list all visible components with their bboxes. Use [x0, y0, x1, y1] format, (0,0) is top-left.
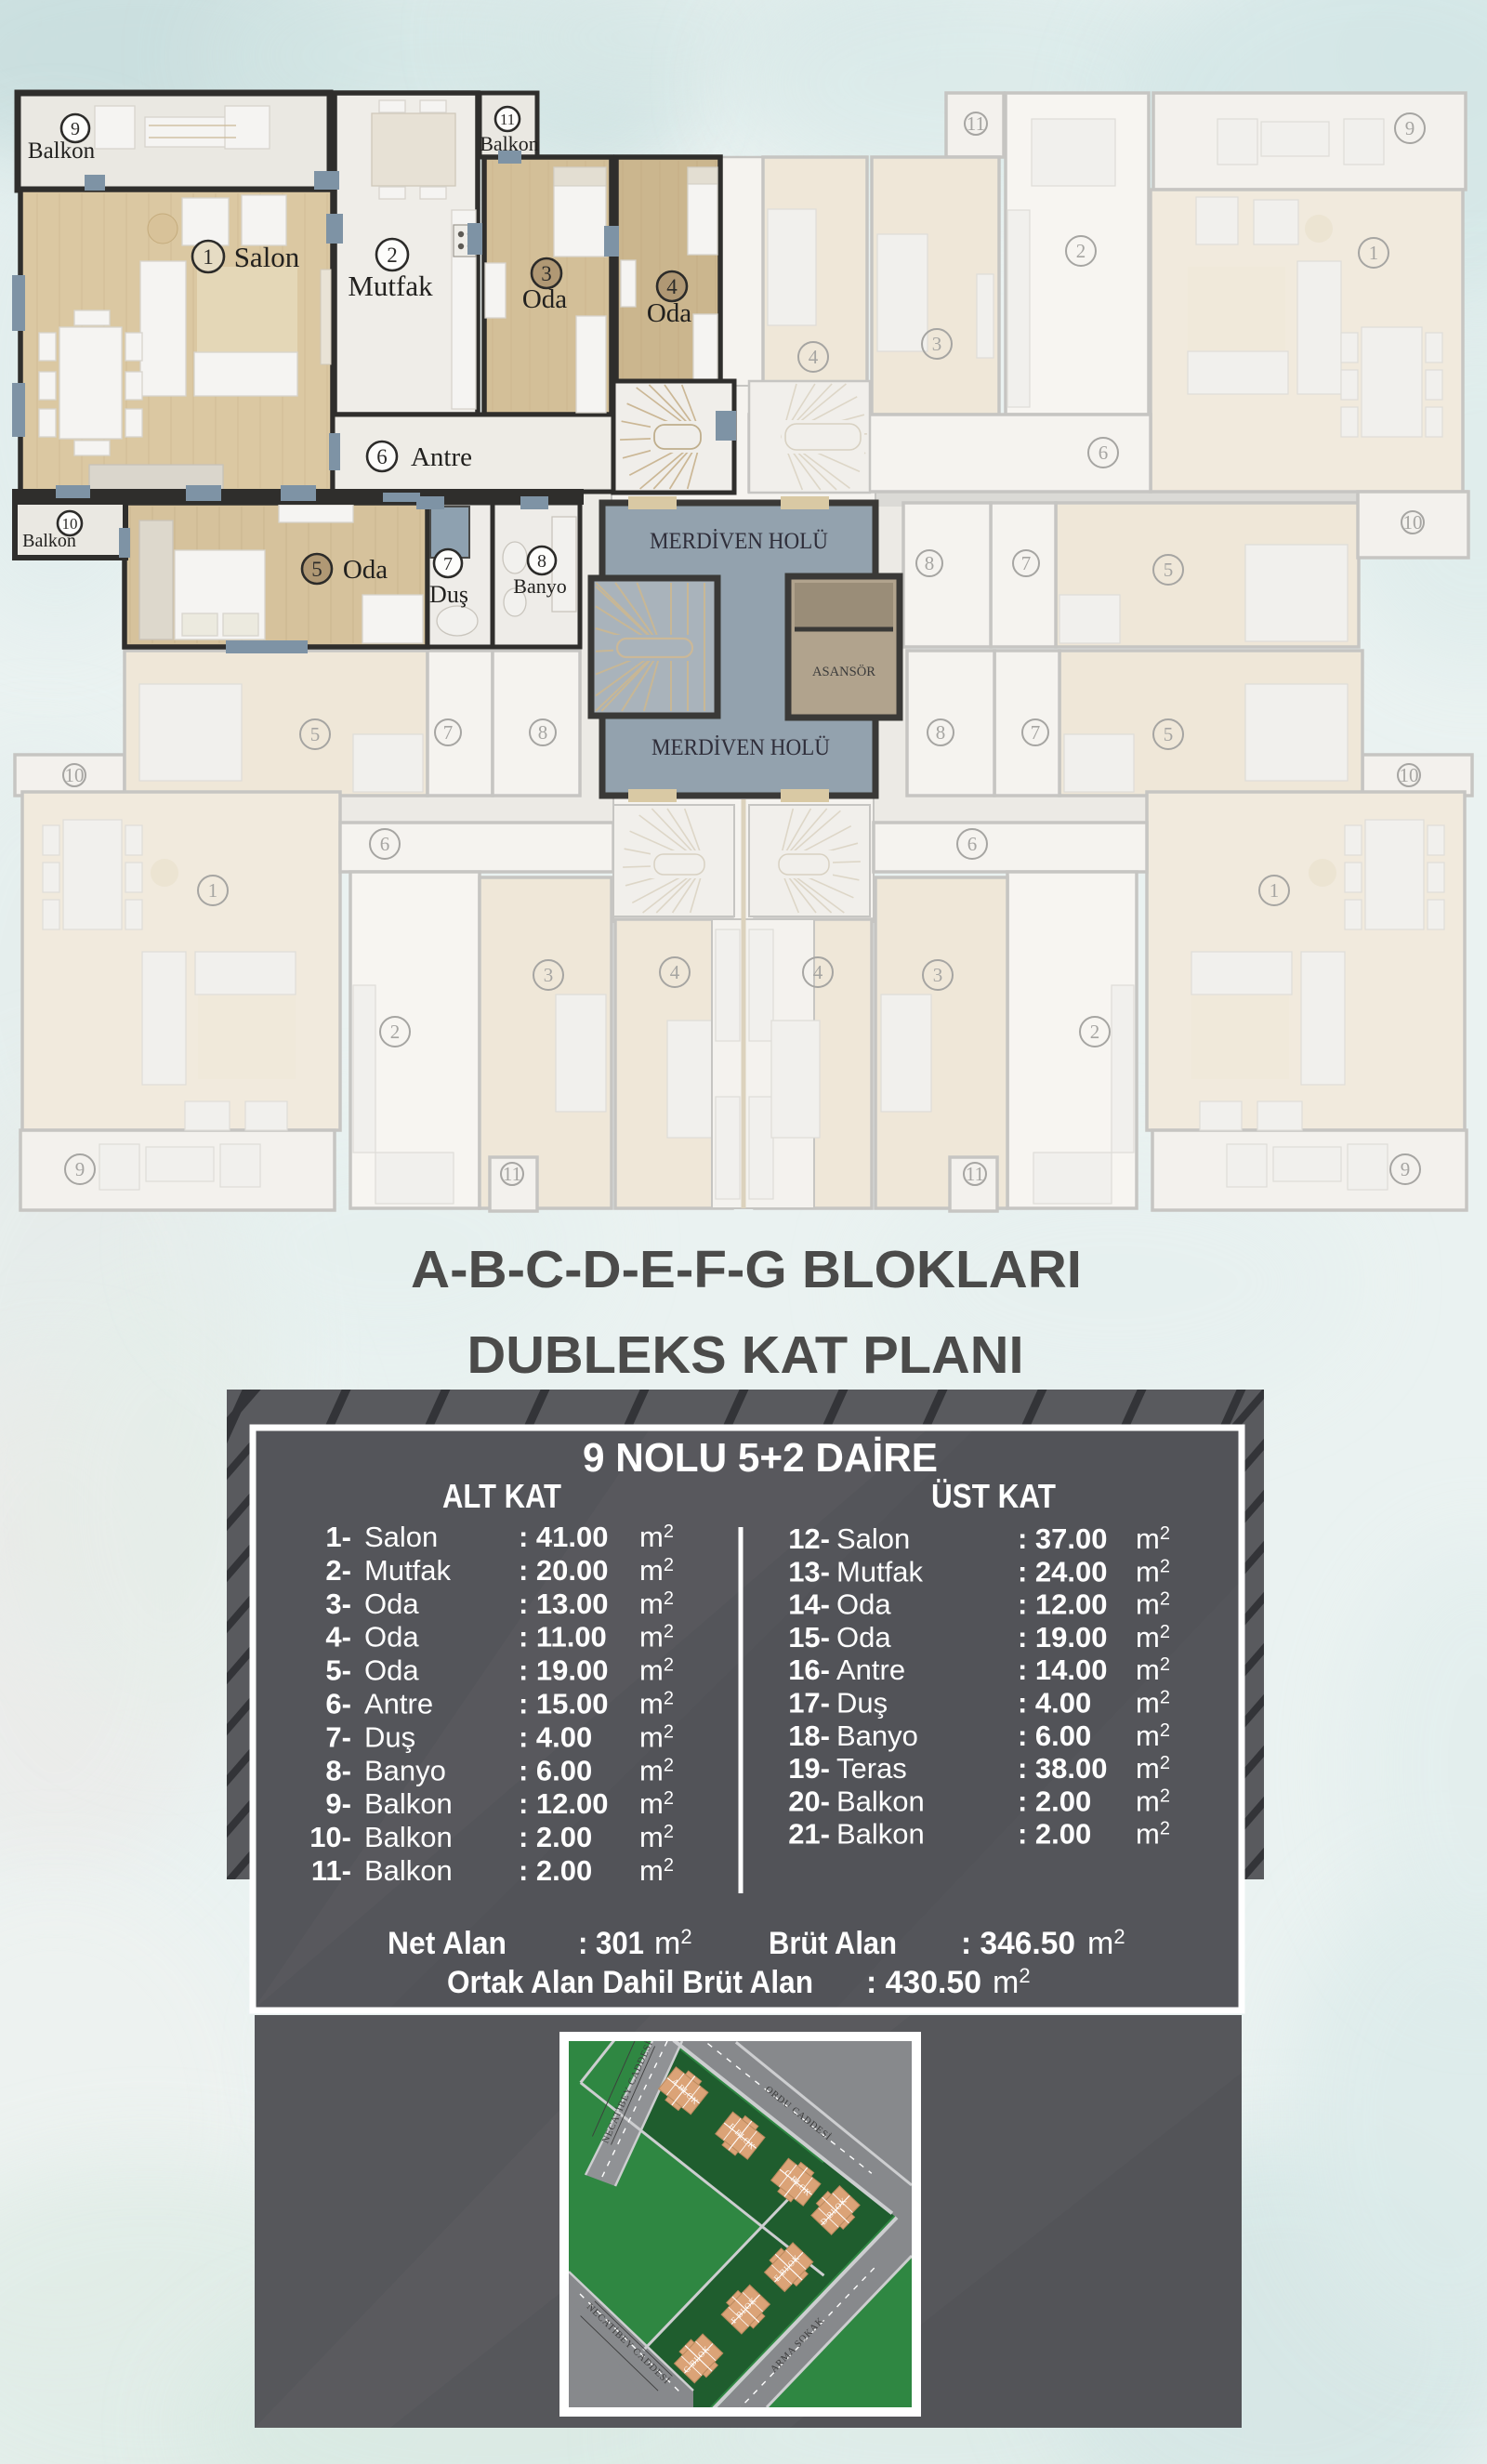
svg-text:11: 11 — [966, 1163, 984, 1185]
svg-text:16-: 16- — [788, 1654, 830, 1686]
svg-text:: 14.00: : 14.00 — [1018, 1654, 1108, 1686]
svg-text:Antre: Antre — [364, 1688, 433, 1720]
svg-text:9: 9 — [1401, 1158, 1411, 1180]
svg-text:1-: 1- — [325, 1521, 351, 1553]
svg-text:DUBLEKS KAT PLANI: DUBLEKS KAT PLANI — [467, 1325, 1024, 1385]
svg-text:8: 8 — [537, 551, 546, 572]
svg-text:Balkon: Balkon — [364, 1787, 453, 1820]
svg-text:8: 8 — [925, 552, 935, 574]
svg-text:11: 11 — [500, 111, 515, 128]
svg-text:Ortak Alan Dahil Brüt Alan: Ortak Alan Dahil Brüt Alan — [447, 1965, 813, 2000]
svg-text:10: 10 — [65, 764, 85, 786]
svg-text:Salon: Salon — [234, 241, 300, 273]
svg-text:11: 11 — [503, 1163, 521, 1185]
svg-text:5: 5 — [311, 558, 322, 581]
svg-text:Teras: Teras — [836, 1752, 907, 1785]
svg-text:3: 3 — [933, 964, 943, 986]
svg-text:: 19.00: : 19.00 — [1018, 1621, 1108, 1654]
svg-text:3: 3 — [544, 964, 554, 986]
svg-text:7: 7 — [443, 554, 453, 574]
svg-text:: 301: : 301 — [578, 1926, 644, 1961]
svg-text:: 2.00: : 2.00 — [1018, 1785, 1091, 1817]
svg-text:13-: 13- — [788, 1555, 830, 1588]
svg-text:Net Alan: Net Alan — [388, 1926, 507, 1961]
svg-text:2: 2 — [1090, 1021, 1100, 1043]
svg-text:10: 10 — [1403, 511, 1423, 534]
svg-text:A-B-C-D-E-F-G BLOKLARI: A-B-C-D-E-F-G BLOKLARI — [411, 1240, 1082, 1299]
svg-text:Balkon: Balkon — [836, 1785, 925, 1817]
svg-text:3: 3 — [932, 333, 942, 355]
svg-text:1: 1 — [208, 879, 218, 902]
svg-text:: 6.00: : 6.00 — [519, 1754, 592, 1786]
svg-text:4-: 4- — [325, 1621, 351, 1654]
svg-text:2: 2 — [390, 1021, 401, 1043]
svg-text:12-: 12- — [788, 1522, 830, 1555]
svg-text:ÜST KAT: ÜST KAT — [931, 1477, 1056, 1515]
svg-text:5: 5 — [310, 723, 321, 745]
svg-text:Banyo: Banyo — [364, 1754, 446, 1786]
svg-text:MERDİVEN HOLÜ: MERDİVEN HOLÜ — [650, 529, 828, 554]
svg-text:1: 1 — [203, 245, 214, 269]
svg-text:Oda: Oda — [522, 284, 567, 314]
svg-text:9: 9 — [1405, 117, 1415, 139]
svg-text:Oda: Oda — [836, 1588, 891, 1621]
svg-text:Salon: Salon — [836, 1522, 910, 1555]
svg-text:11-: 11- — [311, 1854, 351, 1887]
svg-text:: 346.50: : 346.50 — [961, 1926, 1075, 1961]
svg-text:10-: 10- — [309, 1821, 351, 1853]
svg-text:: 13.00: : 13.00 — [519, 1588, 609, 1620]
svg-text:: 2.00: : 2.00 — [1018, 1818, 1091, 1851]
svg-text:Balkon: Balkon — [836, 1818, 925, 1851]
svg-text:Banyo: Banyo — [513, 574, 566, 598]
svg-text:: 12.00: : 12.00 — [519, 1787, 609, 1820]
svg-text:Antre: Antre — [836, 1654, 905, 1686]
svg-text:Oda: Oda — [364, 1621, 419, 1654]
svg-text:4: 4 — [666, 275, 678, 298]
svg-text:Balkon: Balkon — [364, 1821, 453, 1853]
svg-text:15-: 15- — [788, 1621, 830, 1654]
svg-text:9: 9 — [71, 119, 80, 139]
svg-text:Balkon: Balkon — [364, 1854, 453, 1887]
svg-text:Oda: Oda — [836, 1621, 891, 1654]
svg-text:: 430.50: : 430.50 — [866, 1965, 981, 2000]
svg-text:17-: 17- — [788, 1687, 830, 1720]
svg-text:6: 6 — [1099, 441, 1109, 464]
svg-text:: 15.00: : 15.00 — [519, 1688, 609, 1720]
svg-text:18-: 18- — [788, 1720, 830, 1752]
svg-text:4: 4 — [670, 961, 680, 983]
svg-text:: 41.00: : 41.00 — [519, 1521, 609, 1553]
svg-text:2-: 2- — [325, 1554, 351, 1587]
svg-text:: 4.00: : 4.00 — [519, 1720, 592, 1753]
svg-text:: 38.00: : 38.00 — [1018, 1752, 1108, 1785]
svg-text:8: 8 — [936, 721, 946, 744]
svg-text:21-: 21- — [788, 1818, 830, 1851]
svg-text:5: 5 — [1164, 559, 1174, 581]
svg-text:7: 7 — [443, 721, 454, 744]
svg-text:4: 4 — [809, 346, 819, 368]
svg-text:: 37.00: : 37.00 — [1018, 1522, 1108, 1555]
svg-text:Oda: Oda — [647, 298, 691, 328]
svg-text:ALT KAT: ALT KAT — [442, 1477, 561, 1515]
svg-text:20-: 20- — [788, 1785, 830, 1817]
svg-text:7: 7 — [1021, 552, 1032, 574]
svg-text:Banyo: Banyo — [836, 1720, 918, 1752]
svg-text:10: 10 — [1400, 764, 1419, 786]
svg-text:8: 8 — [538, 721, 548, 744]
svg-text:8-: 8- — [325, 1754, 351, 1786]
svg-text:9-: 9- — [325, 1787, 351, 1820]
svg-text:: 19.00: : 19.00 — [519, 1654, 609, 1687]
svg-text:3-: 3- — [325, 1588, 351, 1620]
svg-text:Oda: Oda — [364, 1654, 419, 1687]
svg-text:Balkon: Balkon — [480, 132, 539, 155]
svg-text:Antre: Antre — [411, 442, 472, 472]
svg-text:1: 1 — [1369, 242, 1379, 264]
svg-text:5-: 5- — [325, 1654, 351, 1687]
svg-text:: 20.00: : 20.00 — [519, 1554, 609, 1587]
svg-text:6: 6 — [967, 833, 978, 855]
svg-text:Duş: Duş — [836, 1687, 888, 1720]
svg-text:19-: 19- — [788, 1752, 830, 1785]
svg-text:9 NOLU 5+2 DAİRE: 9 NOLU 5+2 DAİRE — [583, 1435, 938, 1481]
svg-text:: 12.00: : 12.00 — [1018, 1588, 1108, 1621]
svg-text:: 24.00: : 24.00 — [1018, 1555, 1108, 1588]
svg-text:1: 1 — [1270, 879, 1280, 902]
svg-text:Salon: Salon — [364, 1521, 438, 1553]
svg-text:Brüt Alan: Brüt Alan — [769, 1926, 897, 1961]
svg-text:6: 6 — [376, 445, 388, 468]
svg-text:10: 10 — [62, 515, 78, 533]
svg-text:Oda: Oda — [364, 1588, 419, 1620]
svg-text:Mutfak: Mutfak — [364, 1554, 452, 1587]
svg-text:ASANSÖR: ASANSÖR — [812, 664, 875, 679]
svg-text:9: 9 — [75, 1158, 86, 1180]
svg-text:: 2.00: : 2.00 — [519, 1854, 592, 1887]
svg-text:3: 3 — [541, 262, 552, 285]
svg-text:Oda: Oda — [343, 555, 388, 585]
svg-text:Balkon: Balkon — [22, 531, 76, 551]
svg-text:: 11.00: : 11.00 — [519, 1621, 607, 1654]
svg-text:Mutfak: Mutfak — [836, 1555, 924, 1588]
svg-text:Duş: Duş — [429, 581, 468, 608]
svg-text:11: 11 — [967, 112, 985, 135]
svg-text:Duş: Duş — [364, 1720, 415, 1753]
svg-text:: 4.00: : 4.00 — [1018, 1687, 1091, 1720]
svg-text:2: 2 — [1076, 240, 1086, 262]
svg-text:14-: 14- — [788, 1588, 830, 1621]
svg-text:6: 6 — [380, 833, 390, 855]
svg-text:Balkon: Balkon — [28, 138, 96, 164]
svg-text:5: 5 — [1164, 723, 1174, 745]
svg-text:Mutfak: Mutfak — [348, 270, 433, 302]
svg-text:: 6.00: : 6.00 — [1018, 1720, 1091, 1752]
svg-text:MERDİVEN HOLÜ: MERDİVEN HOLÜ — [651, 735, 830, 760]
svg-text:6-: 6- — [325, 1688, 351, 1720]
svg-text:7-: 7- — [325, 1720, 351, 1753]
svg-text:: 2.00: : 2.00 — [519, 1821, 592, 1853]
svg-text:7: 7 — [1031, 721, 1041, 744]
svg-text:2: 2 — [387, 244, 398, 267]
svg-text:4: 4 — [813, 961, 823, 983]
